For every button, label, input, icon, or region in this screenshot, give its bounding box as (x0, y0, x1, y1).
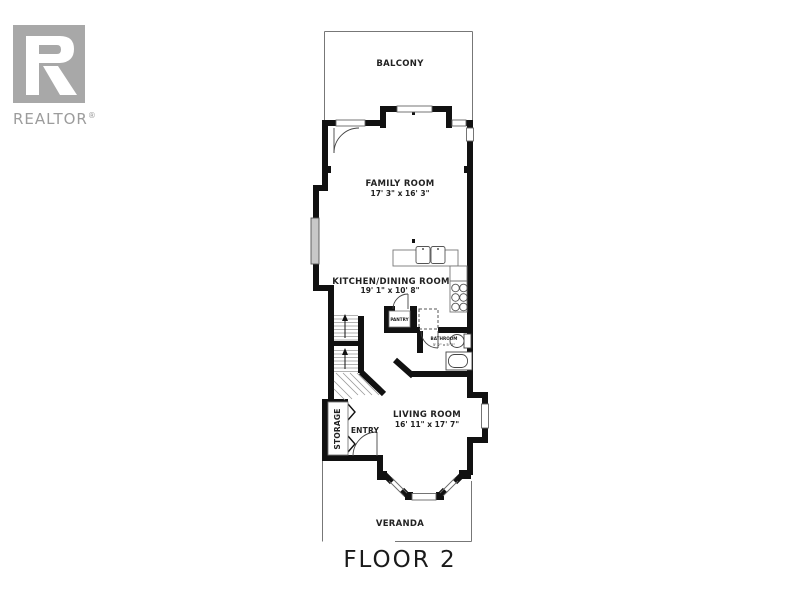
veranda-outline (323, 461, 472, 542)
family-room-window-left (336, 120, 365, 126)
bathroom-label: BATHROOM (431, 336, 458, 341)
entry-label: ENTRY (351, 426, 380, 435)
stairs-treads (334, 316, 379, 401)
bathtub-inner (449, 355, 468, 368)
pantry-door-arc (393, 294, 408, 309)
veranda-label: VERANDA (376, 519, 424, 529)
storage-label: STORAGE (333, 408, 342, 449)
right-wall-window (467, 128, 474, 141)
bay-window-center (412, 494, 436, 501)
balcony-door-window (397, 106, 432, 112)
living-room-window (482, 404, 489, 428)
floorplan-drawing: BALCONY FAMILY ROOM 17' 3" x 16' 3" KITC… (0, 0, 800, 600)
faucet-dot-left (422, 248, 424, 250)
family-room-label: FAMILY ROOM (366, 179, 435, 189)
kitchen-dining-dims: 19' 1" x 10' 8" (360, 286, 419, 295)
floor-title: FLOOR 2 (343, 547, 456, 573)
toilet-tank (464, 334, 471, 348)
floorplan-page: REALTOR® (0, 0, 800, 600)
family-room-door-arc (334, 128, 359, 153)
refrigerator-dashed (419, 309, 438, 329)
family-room-window-right (452, 120, 466, 126)
entry-door-arc (353, 432, 377, 456)
left-wall-window (311, 218, 319, 264)
living-room-label: LIVING ROOM (393, 410, 461, 420)
living-room-dims: 16' 11" x 17' 7" (395, 420, 459, 429)
balcony-label: BALCONY (376, 59, 424, 69)
bathroom-dims: 5' 2" x 5' 2" (433, 342, 456, 347)
pantry-label: PANTRY (390, 317, 409, 322)
family-room-dims: 17' 3" x 16' 3" (370, 189, 429, 198)
faucet-dot-right (437, 248, 439, 250)
